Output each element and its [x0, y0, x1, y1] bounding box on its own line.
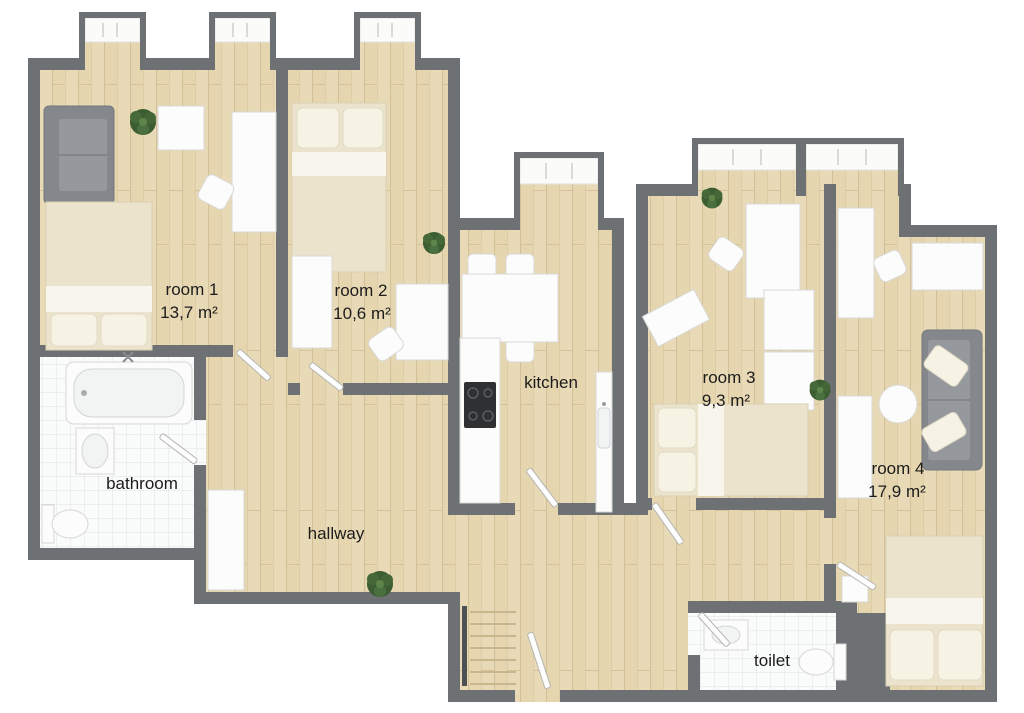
double-bed: [292, 103, 386, 272]
desk: [746, 204, 800, 298]
double-bed: [886, 536, 983, 686]
bay-floor: [85, 42, 140, 70]
room2-label: room 2: [335, 281, 388, 300]
plant-icon: [367, 571, 393, 597]
room3-area: 9,3 m²: [702, 391, 751, 410]
wardrobe: [764, 352, 814, 410]
floor-plan-canvas: room 1 13,7 m² room 2 10,6 m² kitchen ro…: [0, 0, 1024, 713]
bay-floor: [215, 42, 270, 70]
doorway-entrance: [515, 690, 560, 702]
floor-hallway-link: [448, 515, 460, 592]
wardrobe: [208, 490, 244, 590]
radiator: [85, 18, 140, 42]
doorway-toilet: [688, 613, 700, 655]
dining-table: [462, 274, 558, 342]
room2-area: 10,6 m²: [333, 304, 391, 323]
wardrobe: [292, 256, 332, 348]
stair-railing: [462, 606, 467, 686]
radiator: [215, 18, 270, 42]
room3-label: room 3: [703, 368, 756, 387]
radiator: [360, 18, 415, 42]
room1-label: room 1: [166, 280, 219, 299]
radiator: [520, 158, 598, 184]
bay-floor: [360, 42, 415, 70]
sofa: [44, 106, 114, 204]
radiator: [698, 144, 796, 170]
bathroom-label: bathroom: [106, 474, 178, 493]
sideboard: [912, 243, 983, 290]
floor-hallway-right: [648, 510, 824, 601]
cooktop: [464, 382, 496, 428]
floor-plan: room 1 13,7 m² room 2 10,6 m² kitchen ro…: [0, 0, 1024, 713]
room1-area: 13,7 m²: [160, 303, 218, 322]
wardrobe: [764, 290, 814, 350]
desk: [396, 284, 448, 360]
coffee-table: [879, 385, 917, 423]
room4-label: room 4: [872, 459, 925, 478]
toilet-label: toilet: [754, 651, 790, 670]
sink: [598, 402, 610, 448]
sofa: [920, 330, 982, 470]
sink: [76, 428, 114, 474]
hallway-label: hallway: [308, 524, 365, 543]
room4-area: 17,9 m²: [868, 482, 926, 501]
radiator: [806, 144, 898, 170]
doorway-room4: [824, 518, 836, 564]
plant-icon: [423, 232, 445, 254]
plant-icon: [702, 188, 723, 209]
plant-icon: [130, 109, 156, 135]
wardrobe: [838, 396, 872, 498]
bay-floor: [806, 170, 898, 196]
double-bed: [46, 202, 152, 350]
bay-floor: [520, 184, 598, 230]
double-bed: [654, 404, 808, 496]
plant-icon: [810, 380, 831, 401]
kitchen-label: kitchen: [524, 373, 578, 392]
desk: [838, 208, 874, 318]
desk: [232, 112, 276, 232]
bathtub: [66, 352, 192, 424]
dresser: [158, 106, 204, 150]
